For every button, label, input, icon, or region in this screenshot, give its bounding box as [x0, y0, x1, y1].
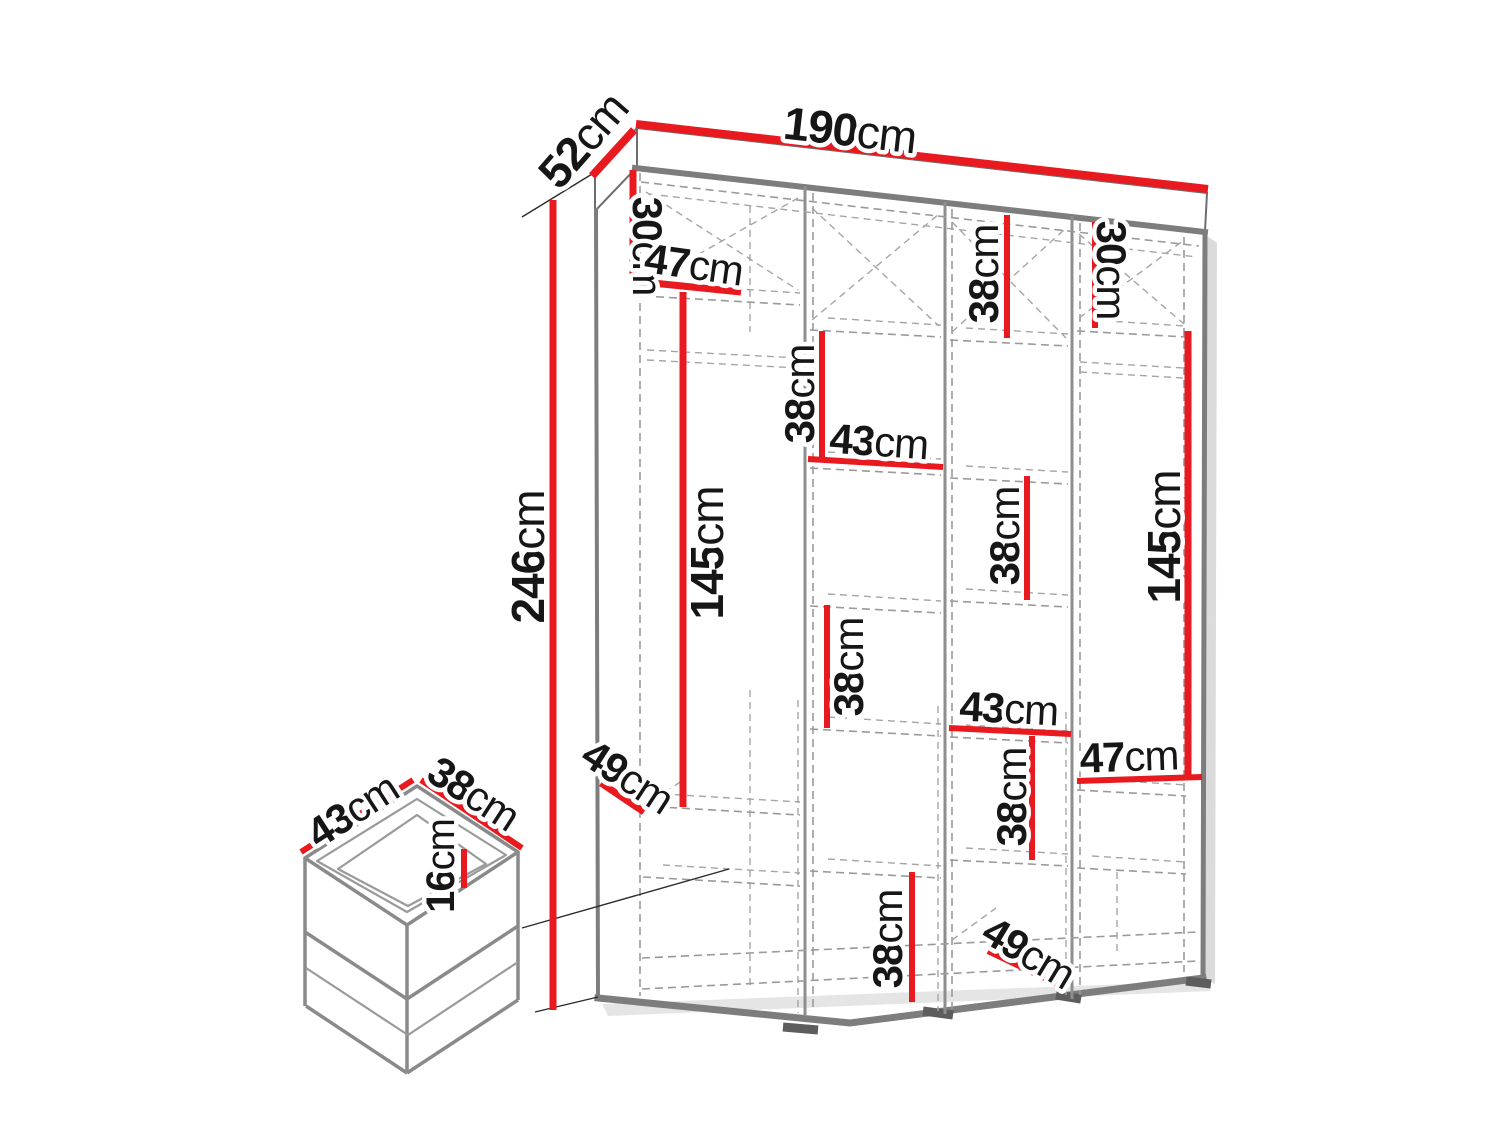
dim-label-drawer-43: 43cm — [298, 763, 406, 856]
dim-label-col1-145: 145cm — [681, 486, 733, 619]
wardrobe-dimension-diagram: 52cm 190cm 246cm 30cm 47cm 145cm 49cm 38… — [0, 0, 1500, 1125]
dim-label-col4-145: 145cm — [1138, 470, 1190, 603]
dim-label-col3-38c: 38cm — [988, 748, 1035, 847]
dim-label-col3-49: 49cm — [975, 906, 1084, 997]
dim-label-col2-38a: 38cm — [776, 345, 823, 444]
dim-label-drawer-16: 16cm — [419, 819, 463, 913]
dim-label-col2-43: 43cm — [828, 414, 930, 468]
diagram-canvas: 52cm 190cm 246cm 30cm 47cm 145cm 49cm 38… — [0, 0, 1500, 1125]
dimension-labels: 52cm 190cm 246cm 30cm 47cm 145cm 49cm 38… — [298, 82, 1190, 998]
dim-label-col3-43: 43cm — [958, 682, 1059, 734]
dim-label-col2-38b: 38cm — [825, 618, 872, 717]
dim-label-col2-38c: 38cm — [864, 890, 911, 989]
dim-label-col4-30: 30cm — [1089, 221, 1136, 320]
dim-label-col3-38b: 38cm — [981, 487, 1028, 586]
dim-label-col3-38a: 38cm — [960, 225, 1007, 324]
dim-label-col4-47: 47cm — [1079, 731, 1179, 781]
dim-label-height-246: 246cm — [502, 490, 554, 623]
dim-label-col1-49: 49cm — [574, 729, 682, 822]
